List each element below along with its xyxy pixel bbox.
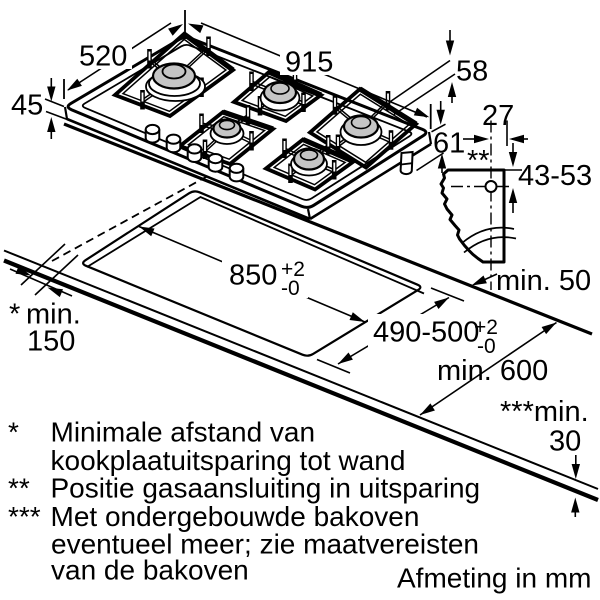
svg-text:*: * [9,299,20,331]
svg-text:150: 150 [27,326,75,358]
svg-text:Met ondergebouwde bakoven: Met ondergebouwde bakoven [51,501,420,532]
svg-text:490-500: 490-500 [373,317,479,349]
svg-text:27: 27 [482,100,514,132]
svg-text:61: 61 [433,128,465,160]
svg-text:***: *** [8,501,41,532]
svg-text:van de bakoven: van de bakoven [51,555,249,586]
svg-text:*: * [8,417,19,448]
svg-text:min. 600: min. 600 [437,355,548,387]
svg-text:-0: -0 [281,277,300,300]
svg-text:**: ** [467,145,490,177]
svg-text:Positie gasaansluiting in uits: Positie gasaansluiting in uitsparing [51,473,481,504]
svg-text:**: ** [8,473,30,504]
svg-text:45: 45 [11,90,43,122]
svg-text:850: 850 [229,260,277,292]
svg-text:43-53: 43-53 [518,160,592,192]
svg-text:30: 30 [549,426,581,458]
svg-text:kookplaatuitsparing tot wand: kookplaatuitsparing tot wand [51,445,406,476]
svg-text:520: 520 [79,41,127,73]
svg-text:915: 915 [285,47,333,79]
svg-text:Minimale afstand van: Minimale afstand van [51,417,316,448]
svg-text:Afmeting in mm: Afmeting in mm [397,563,592,594]
svg-text:58: 58 [456,56,488,88]
svg-text:min. 50: min. 50 [496,265,591,297]
svg-text:***min.: ***min. [500,396,589,428]
